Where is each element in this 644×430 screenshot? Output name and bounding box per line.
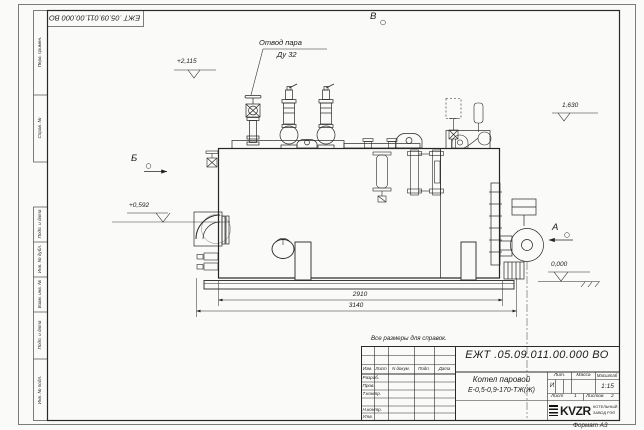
- mass-header: Масса: [572, 374, 595, 379]
- elevation-marks: [112, 70, 600, 287]
- left-elbow-duct: [194, 212, 231, 246]
- dimension-3140: 3140: [331, 303, 381, 310]
- view-marks: [144, 20, 573, 240]
- reference-note: Все размеры для справок.: [371, 336, 447, 342]
- company-line2: ЗАВОД РЭП: [593, 411, 615, 415]
- format-label: Формат А3: [573, 423, 607, 429]
- margin-label-sprav: Справ. №: [35, 98, 45, 158]
- product-name-line1: Котел паровой: [456, 376, 547, 384]
- elevation-0592: +0,592: [129, 203, 149, 210]
- margin-label-inv-podl: Инв. № подл.: [35, 360, 45, 420]
- litera-value: И: [548, 383, 556, 389]
- steam-outlet-valve: [245, 96, 261, 146]
- elevation-0000: 0,000: [551, 262, 567, 269]
- elevation-2115: +2,115: [177, 59, 197, 66]
- scale-value: 1:15: [595, 384, 620, 391]
- top-left-designation-stamp: ЕЖТ .05.09.011.00.000 ВО: [47, 10, 143, 26]
- company-line1: КОТЕЛЬНЫЙ: [593, 405, 617, 409]
- boiler-drawing-linework: [0, 0, 644, 430]
- product-name-line2: Е-0,5-0,9-170-ТЖ(Ж): [456, 387, 547, 394]
- title-designation: ЕЖТ .05.09.011.00.000 ВО: [456, 350, 618, 361]
- col-header-data: Дата: [434, 367, 455, 371]
- view-marker-a: А: [552, 223, 558, 233]
- row-nkontr: Н.контр.: [363, 408, 382, 413]
- sheet-value: 1: [574, 395, 577, 400]
- blueprint-page: ЕЖТ .05.09.011.00.000 ВО Перв. примен. С…: [0, 0, 644, 430]
- margin-label-perv-primen: Перв. примен.: [35, 22, 45, 82]
- callout-dn32: Ду 32: [277, 51, 297, 59]
- lifting-lug: [452, 135, 468, 148]
- col-header-list: Лист: [374, 367, 388, 371]
- rear-top-fittings: [446, 99, 491, 149]
- dimension-2910: 2910: [335, 292, 385, 299]
- water-level-gauge: [408, 150, 444, 195]
- sheet-frame: [19, 5, 636, 425]
- safety-valve-right: [317, 84, 335, 149]
- row-tkontr: Т.контр.: [363, 392, 382, 397]
- stamp-text: ЕЖТ .05.09.011.00.000 ВО: [49, 14, 140, 22]
- sensor-cylinder: [474, 103, 483, 123]
- col-header-izm: Изм.: [361, 367, 374, 371]
- sheets-label: Листов: [586, 395, 603, 400]
- sheet-label: Лист: [551, 395, 563, 400]
- row-razrab: Разраб.: [363, 376, 380, 381]
- col-header-podp: Подп.: [414, 367, 434, 371]
- drain-nozzles: [197, 253, 218, 270]
- view-marker-v: В: [370, 12, 376, 22]
- margin-label-podp-data-2: Подп. и дата: [35, 305, 45, 365]
- elevation-1630: 1,630: [562, 103, 578, 110]
- row-prov: Пров.: [363, 384, 375, 389]
- left-wall-valve: [206, 151, 218, 167]
- view-marker-b: Б: [131, 154, 137, 164]
- manhole: [272, 238, 294, 258]
- lit-header: Лит.: [548, 374, 571, 379]
- separator-tube: [373, 152, 391, 202]
- callout-steam-outlet: Отвод пара: [259, 39, 302, 47]
- sheets-value: 2: [611, 395, 614, 400]
- row-utv: Утв.: [363, 415, 373, 420]
- scale-header: Масштаб: [594, 374, 620, 378]
- boiler-body: [219, 131, 500, 279]
- kvzr-logo-text: KVZR: [560, 404, 591, 418]
- col-header-doc: N докум.: [388, 367, 414, 371]
- kvzr-logo-icon: [549, 405, 558, 416]
- supports-skid: [204, 242, 514, 289]
- safety-valve-left: [280, 84, 298, 149]
